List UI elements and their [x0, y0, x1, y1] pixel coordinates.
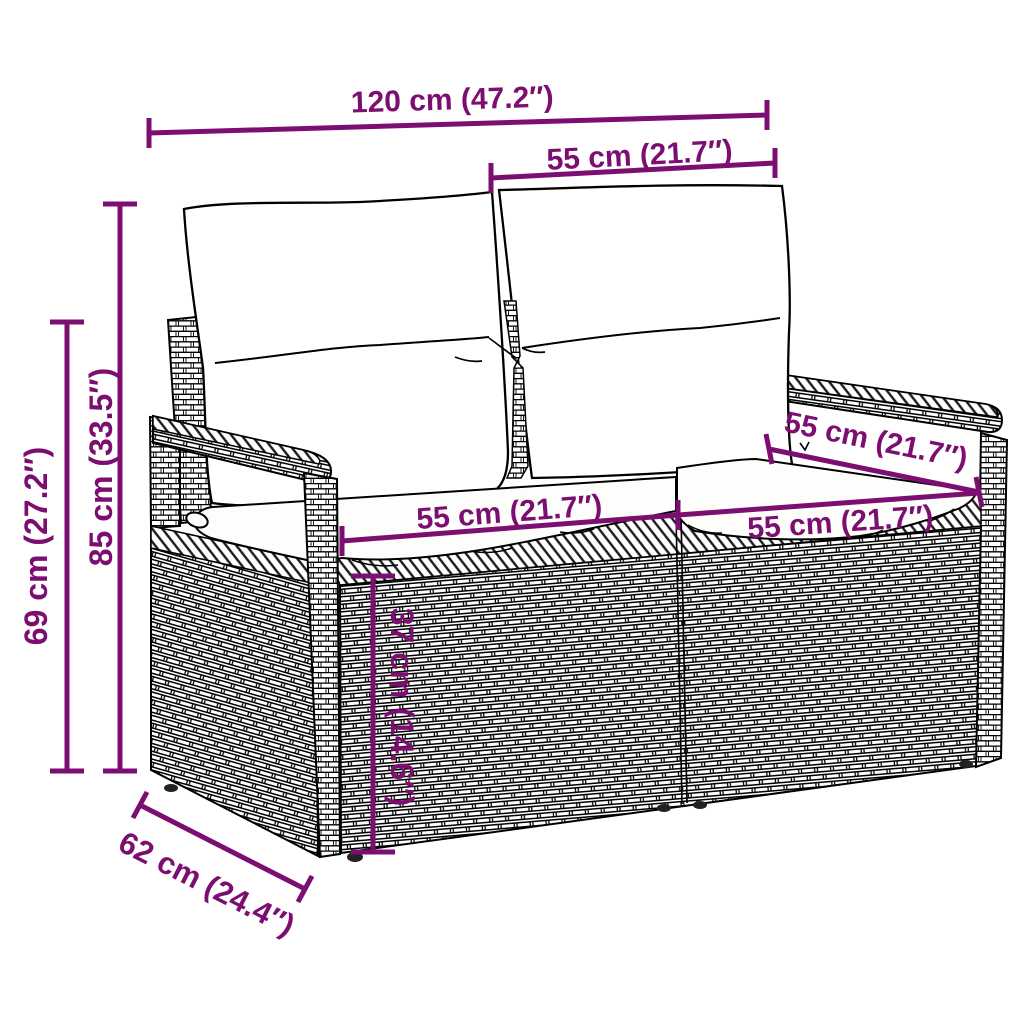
svg-text:85 cm (33.5″): 85 cm (33.5″)	[83, 368, 119, 567]
svg-text:69 cm (27.2″): 69 cm (27.2″)	[18, 447, 54, 646]
svg-text:120 cm (47.2″): 120 cm (47.2″)	[350, 81, 554, 120]
svg-text:37 cm (14.6″): 37 cm (14.6″)	[384, 608, 420, 807]
